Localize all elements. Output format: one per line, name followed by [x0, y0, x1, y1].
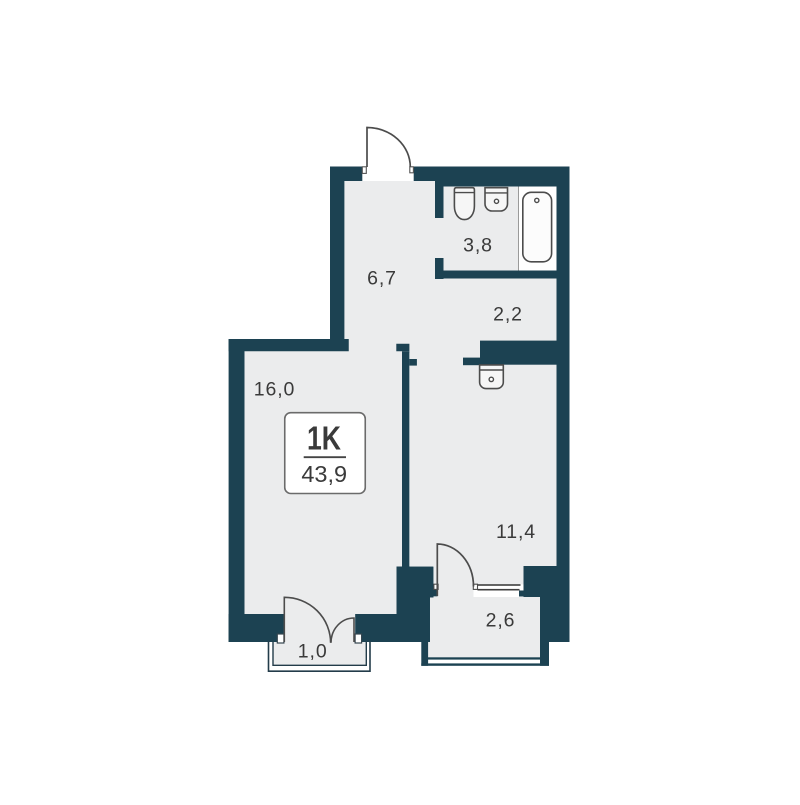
svg-text:3,8: 3,8 [463, 235, 493, 257]
svg-text:11,4: 11,4 [496, 521, 536, 543]
svg-text:2,6: 2,6 [486, 610, 516, 632]
svg-text:43,9: 43,9 [301, 461, 347, 487]
svg-text:6,7: 6,7 [367, 268, 397, 290]
svg-text:16,0: 16,0 [254, 379, 296, 401]
svg-text:1,0: 1,0 [298, 641, 328, 663]
svg-text:2,2: 2,2 [493, 304, 523, 326]
svg-text:1K: 1K [307, 420, 341, 457]
